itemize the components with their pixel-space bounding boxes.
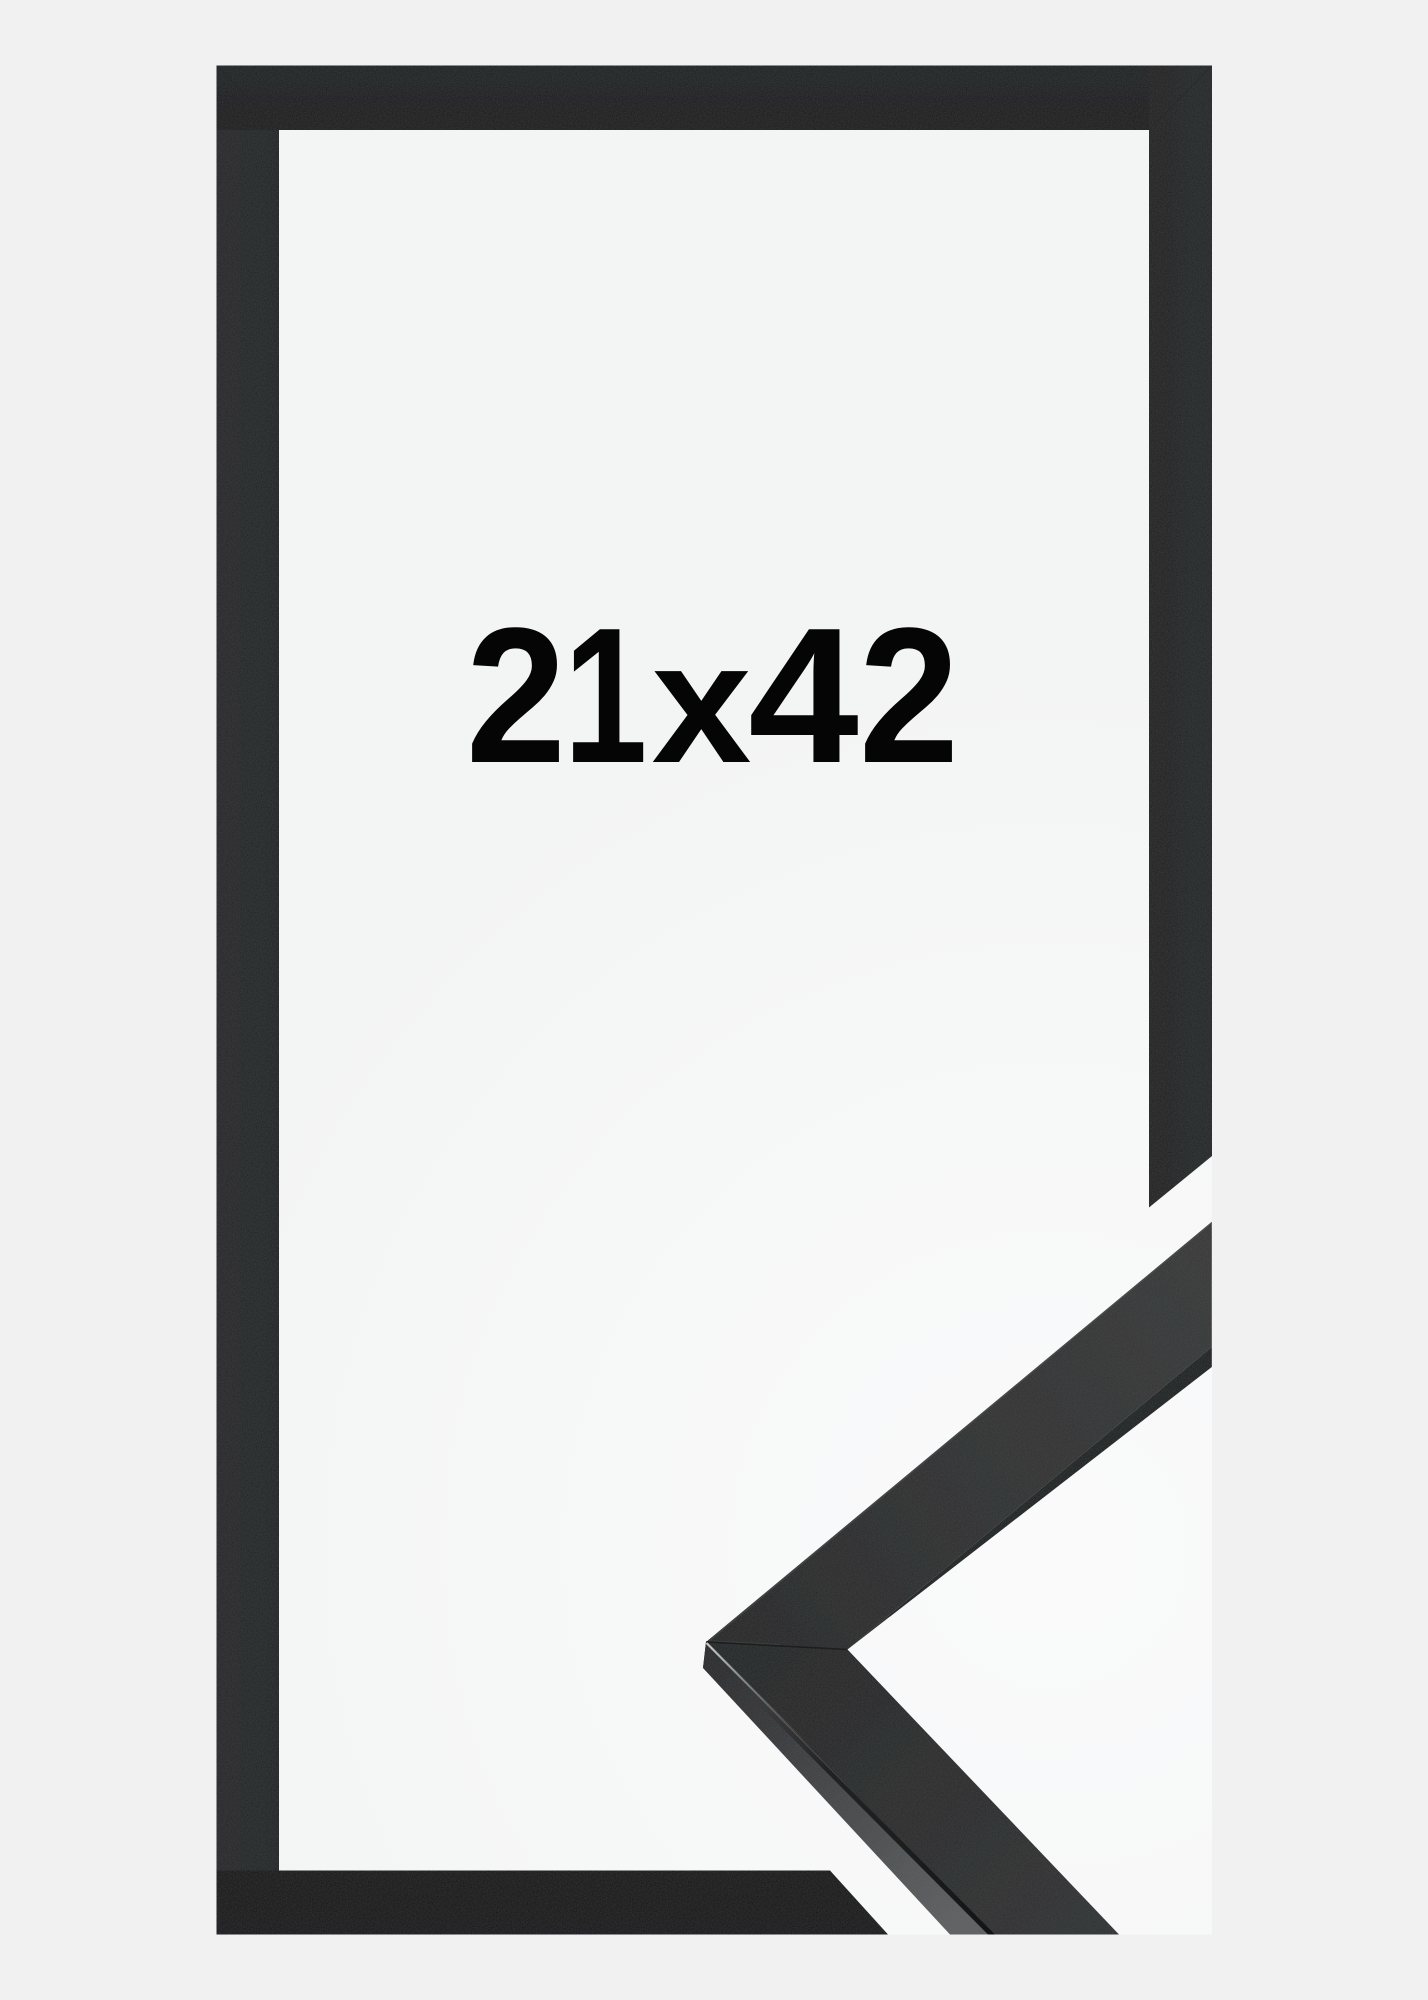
svg-text:x: x — [652, 607, 752, 799]
svg-text:2: 2 — [466, 587, 566, 803]
svg-text:2: 2 — [859, 587, 959, 803]
svg-text:1: 1 — [564, 587, 648, 803]
svg-text:4: 4 — [748, 588, 859, 804]
